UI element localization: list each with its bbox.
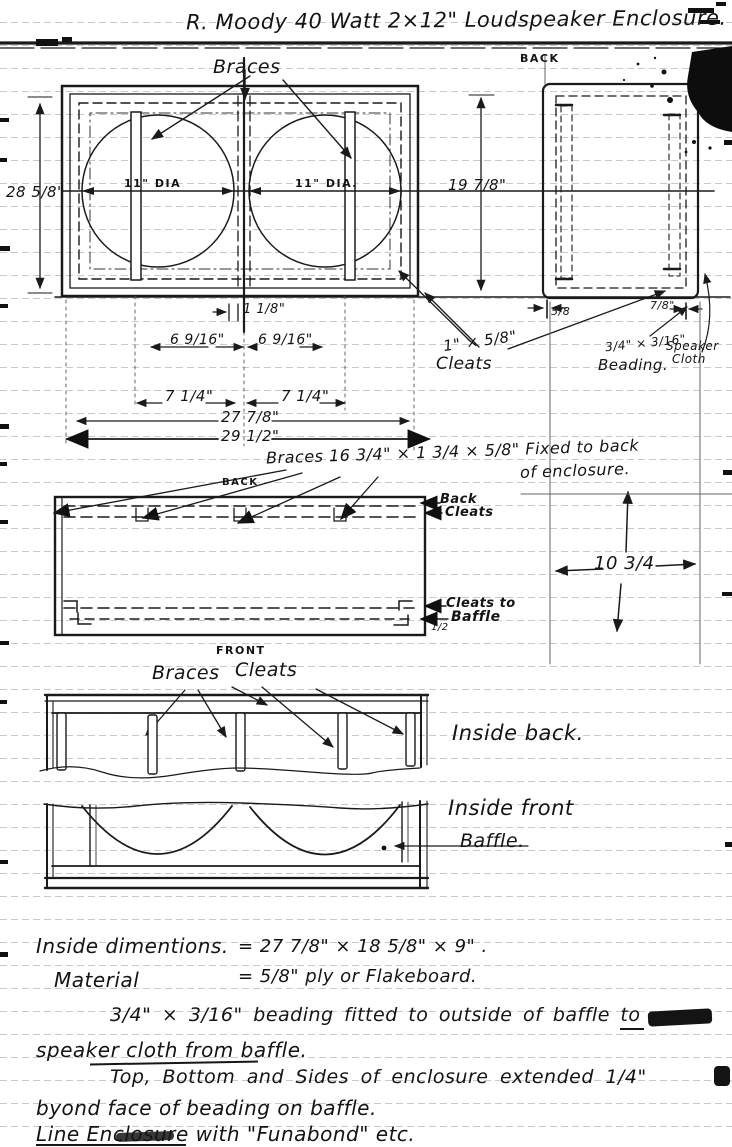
note-material-label: Material [54, 968, 139, 992]
cleats-word-label: Cleats [436, 354, 492, 374]
half-left-dimension: 7 1/4" [165, 387, 213, 405]
note-beading: 3/4" × 3/16" beading fitted to outside o… [110, 1004, 641, 1026]
speaker-cloth-label-1: Speaker [666, 339, 719, 353]
center-gap-dimension: 1 1/8" [243, 302, 285, 317]
back-cleats-label-2: Cleats [445, 505, 494, 520]
inside-back-drawing [40, 687, 428, 778]
back-height-dimension: 19 7/8" [448, 176, 506, 194]
half-right-dimension: 7 1/4" [281, 387, 329, 405]
back-view-drawing [55, 46, 732, 352]
outer-width-dimension: 29 1/2" [221, 427, 279, 445]
left-cutout-arc [82, 806, 232, 854]
underline-line [36, 1144, 186, 1146]
inside-back-caption: Inside back. [452, 721, 584, 745]
right-cleat [669, 114, 680, 276]
half-dimension: 1/2 [431, 622, 449, 633]
braces-note-line2: of enclosure. [520, 459, 631, 482]
note-extended: Top, Bottom and Sides of enclosure exten… [110, 1066, 647, 1088]
plan-baffle-label: Baffle [451, 609, 501, 625]
right-circle-diameter-label: 11" DIA. [295, 177, 358, 190]
front-braces-label: Braces [213, 56, 281, 78]
spacing-left-dimension: 6 9/16" [170, 332, 225, 348]
scanned-plan-page: R. Moody 40 Watt 2×12" Loudspeaker Enclo… [0, 0, 732, 1147]
plan-back-label: BACK [222, 477, 258, 488]
inside-back-braces-label: Braces [152, 662, 220, 684]
inside-front-baffle-label: Baffle. [460, 830, 525, 852]
note-lining: Line Enclosure with "Funabond" etc. [36, 1122, 415, 1146]
front-view-drawing [28, 58, 714, 332]
left-brace [131, 112, 141, 280]
note-cloth: speaker cloth from baffle. [36, 1038, 307, 1062]
edge-dimension: 7/8" [650, 299, 675, 312]
note-dimensions-label: Inside dimentions. [36, 934, 229, 958]
left-cleat [561, 106, 572, 278]
ink-blot [687, 46, 732, 132]
plan-front-label: FRONT [216, 644, 266, 657]
note-material-value: = 5/8" ply or Flakeboard. [238, 966, 477, 987]
note-dimensions-value: = 27 7/8" × 18 5/8" × 9" . [238, 936, 488, 957]
speaker-cloth-label-2: Cloth [672, 352, 706, 366]
inside-front-caption: Inside front [448, 796, 574, 820]
inner-depth-dimension: 10 3/4 [594, 553, 655, 574]
underline-to [620, 1028, 644, 1030]
note-beyond: byond face of beading on baffle. [36, 1096, 377, 1120]
cleats-arrow-1 [399, 271, 470, 341]
break-line [40, 767, 420, 778]
spacing-right-dimension: 6 9/16" [258, 332, 313, 348]
side-thickness-dimension: 5/8 [551, 305, 570, 318]
right-cutout-arc [250, 805, 400, 855]
inner-width-dimension: 27 7/8" [221, 408, 279, 426]
beading-word-label: Beading. [598, 356, 668, 374]
right-brace [345, 112, 355, 280]
back-view-caption: BACK [520, 52, 560, 65]
inside-back-cleats-label: Cleats [235, 659, 297, 681]
scan-edge-marks [0, 118, 732, 957]
height-dimension: 28 5/8" [6, 183, 64, 201]
left-circle-diameter-label: 11" DIA [124, 177, 181, 190]
break-line [44, 802, 428, 808]
hanging-braces [57, 713, 415, 774]
page-title: R. Moody 40 Watt 2×12" Loudspeaker Enclo… [186, 6, 727, 35]
ink-smudge [714, 1066, 730, 1086]
